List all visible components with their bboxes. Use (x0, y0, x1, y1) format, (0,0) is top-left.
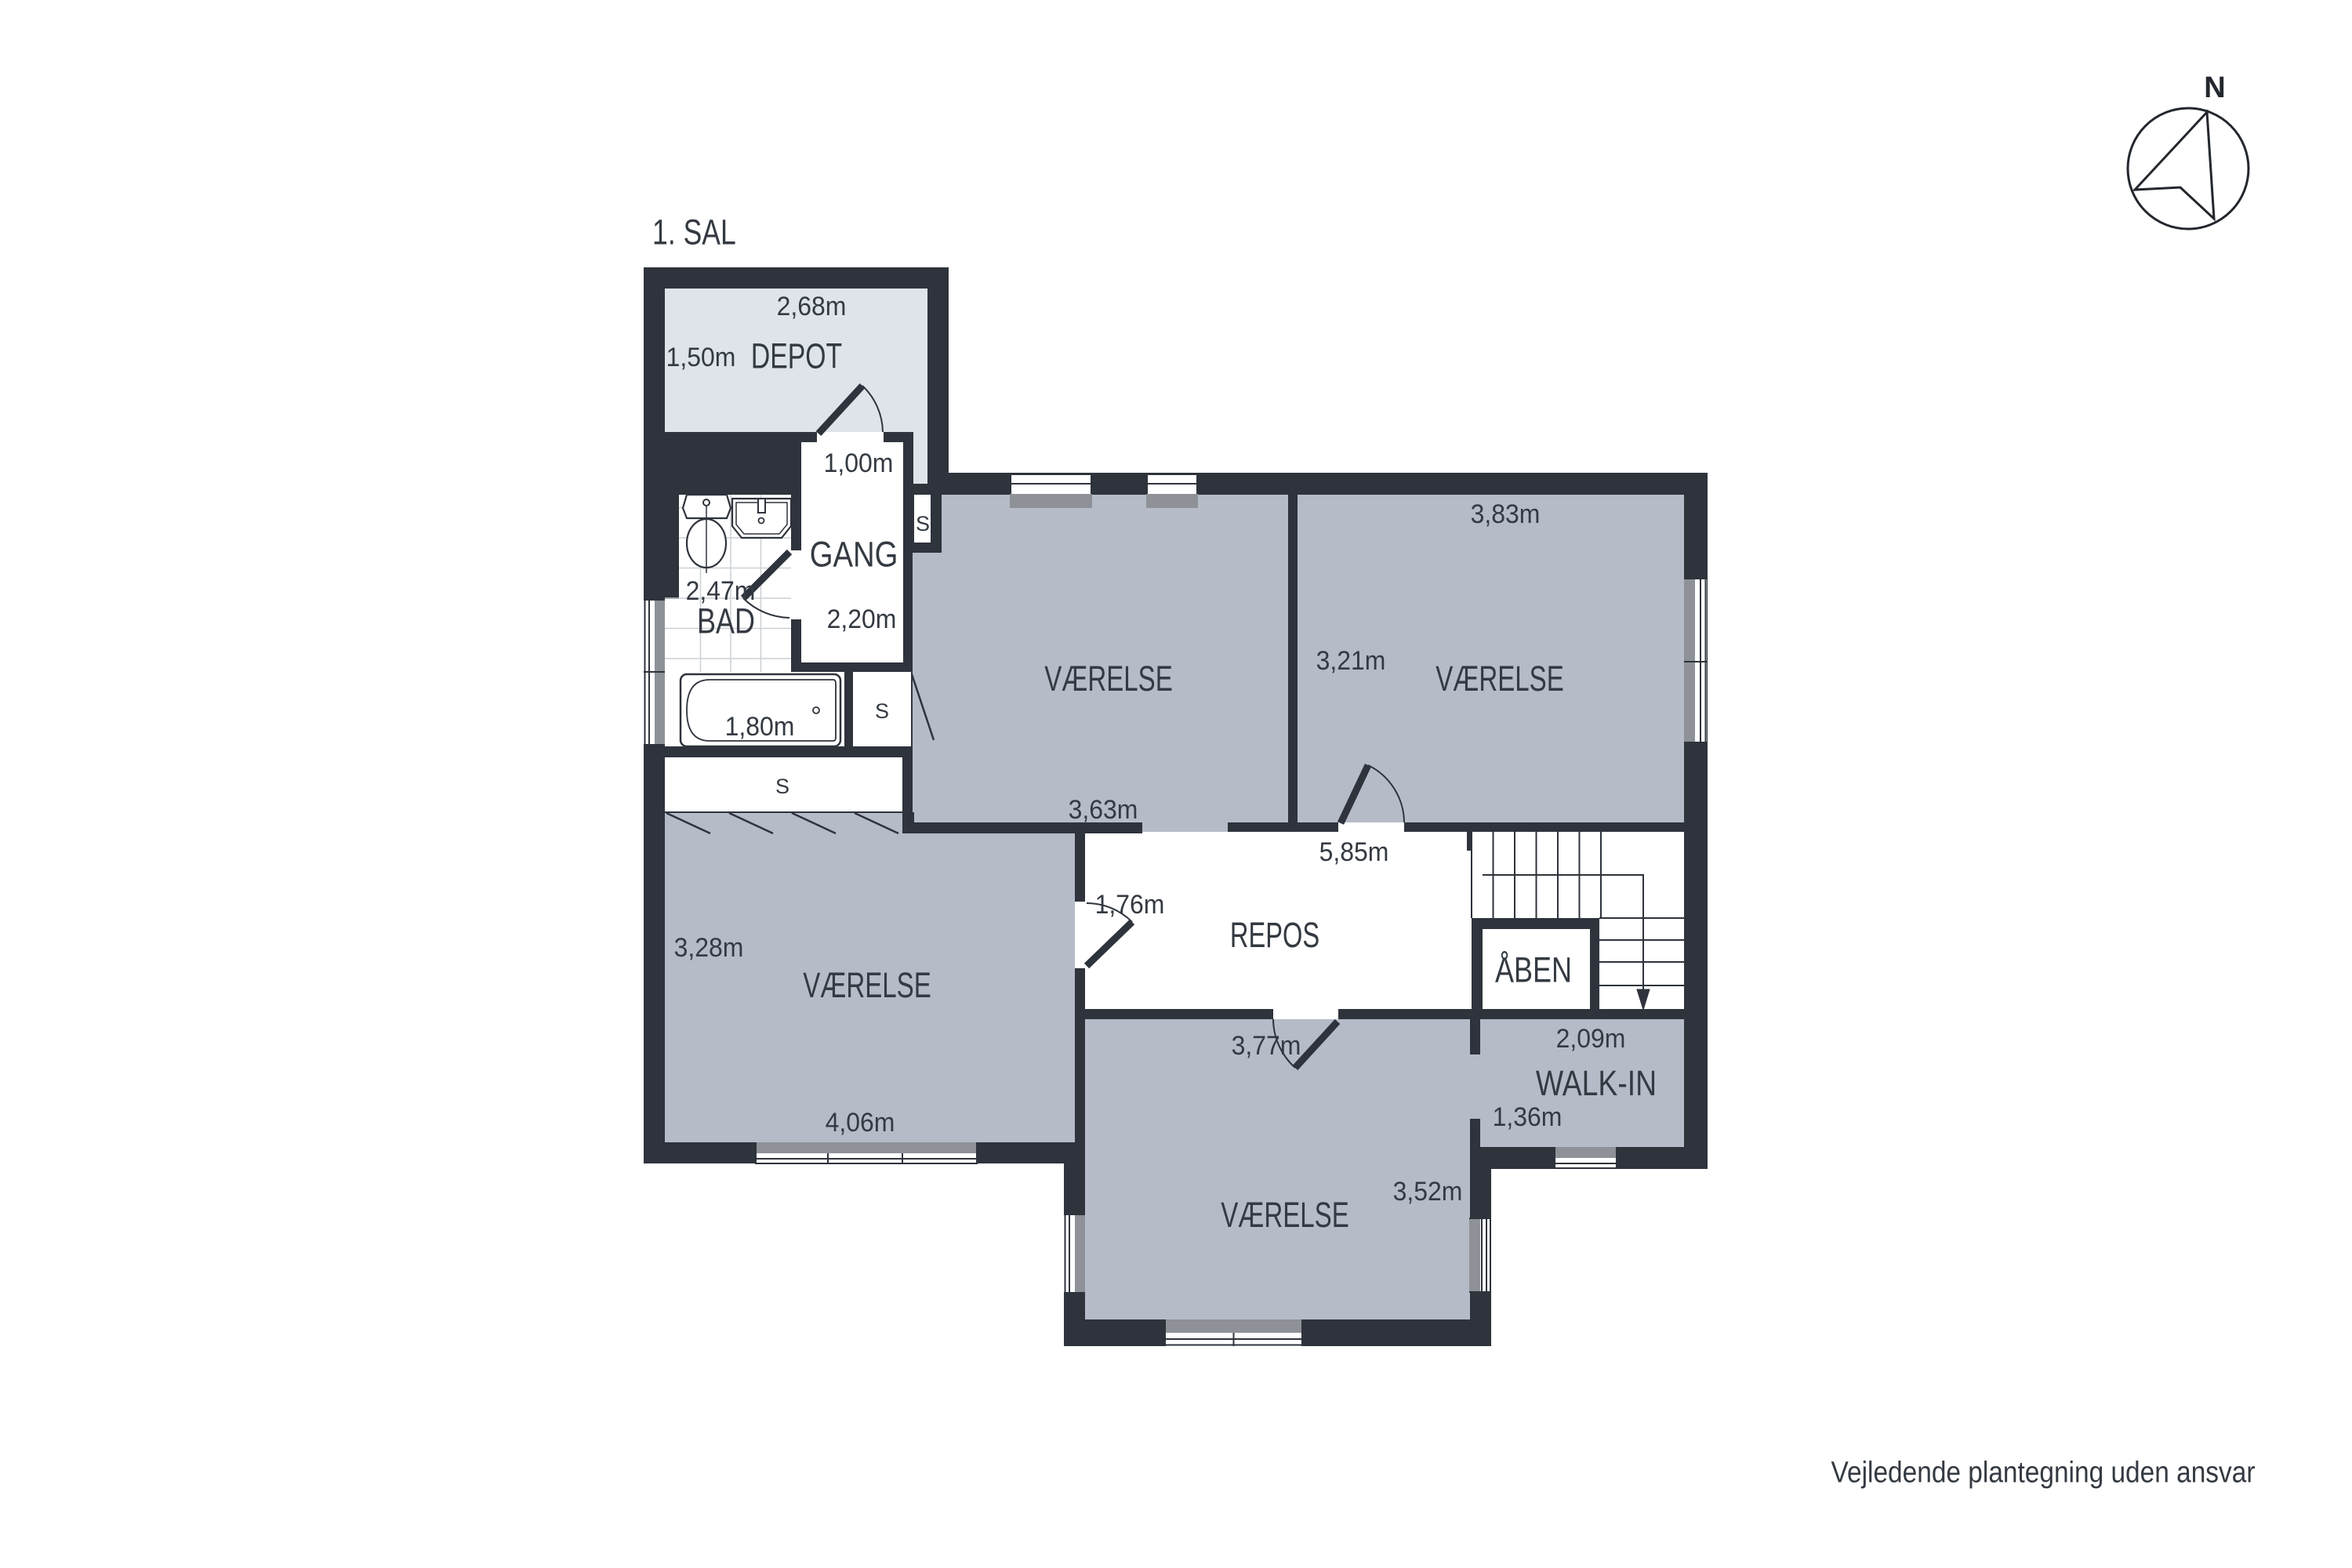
svg-text:S: S (775, 775, 789, 798)
svg-text:1,80m: 1,80m (725, 711, 795, 741)
svg-text:1. SAL: 1. SAL (652, 212, 736, 252)
svg-text:1,76m: 1,76m (1095, 889, 1165, 919)
svg-text:VÆRELSE: VÆRELSE (1221, 1196, 1349, 1235)
svg-text:3,83m: 3,83m (1471, 499, 1541, 528)
svg-text:1,36m: 1,36m (1493, 1102, 1563, 1131)
svg-text:3,28m: 3,28m (674, 932, 744, 962)
svg-text:2,20m: 2,20m (827, 604, 897, 633)
svg-text:1,50m: 1,50m (666, 342, 736, 372)
svg-text:3,21m: 3,21m (1316, 645, 1386, 675)
svg-text:DEPOT: DEPOT (751, 337, 842, 376)
svg-text:WALK-IN: WALK-IN (1536, 1064, 1657, 1103)
svg-text:GANG: GANG (810, 535, 898, 575)
svg-text:BAD: BAD (697, 601, 755, 641)
svg-text:VÆRELSE: VÆRELSE (1044, 659, 1173, 699)
svg-text:4,06m: 4,06m (826, 1107, 895, 1137)
svg-text:S: S (875, 699, 889, 723)
svg-text:REPOS: REPOS (1230, 916, 1319, 955)
svg-text:S: S (916, 512, 930, 535)
svg-text:5,85m: 5,85m (1319, 837, 1389, 866)
svg-text:ÅBEN: ÅBEN (1495, 950, 1572, 990)
svg-text:1,00m: 1,00m (824, 448, 894, 477)
svg-text:3,77m: 3,77m (1232, 1030, 1301, 1060)
svg-text:2,47m: 2,47m (686, 575, 756, 605)
svg-text:VÆRELSE: VÆRELSE (803, 966, 931, 1005)
svg-text:2,68m: 2,68m (777, 291, 847, 321)
svg-text:VÆRELSE: VÆRELSE (1436, 659, 1564, 699)
svg-text:3,52m: 3,52m (1393, 1176, 1463, 1206)
svg-text:N: N (2204, 71, 2225, 104)
svg-text:Vejledende plantegning uden an: Vejledende plantegning uden ansvar (1831, 1456, 2256, 1489)
svg-text:3,63m: 3,63m (1069, 794, 1138, 824)
svg-text:2,09m: 2,09m (1556, 1023, 1626, 1053)
